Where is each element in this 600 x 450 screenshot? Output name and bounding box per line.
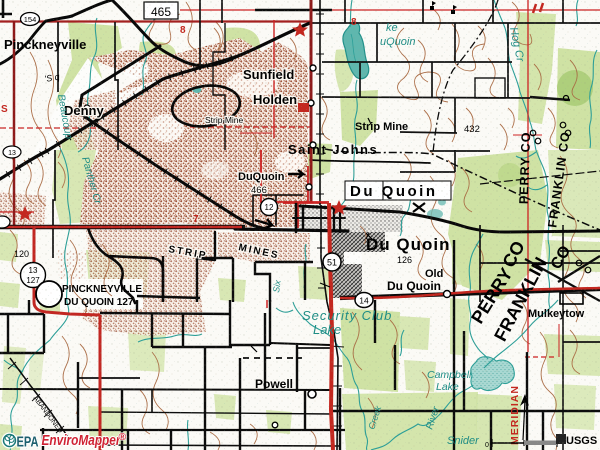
- svg-text:EnviroMapper: EnviroMapper: [42, 433, 122, 449]
- svg-text:®: ®: [119, 431, 127, 443]
- svg-text:EPA: EPA: [17, 435, 39, 450]
